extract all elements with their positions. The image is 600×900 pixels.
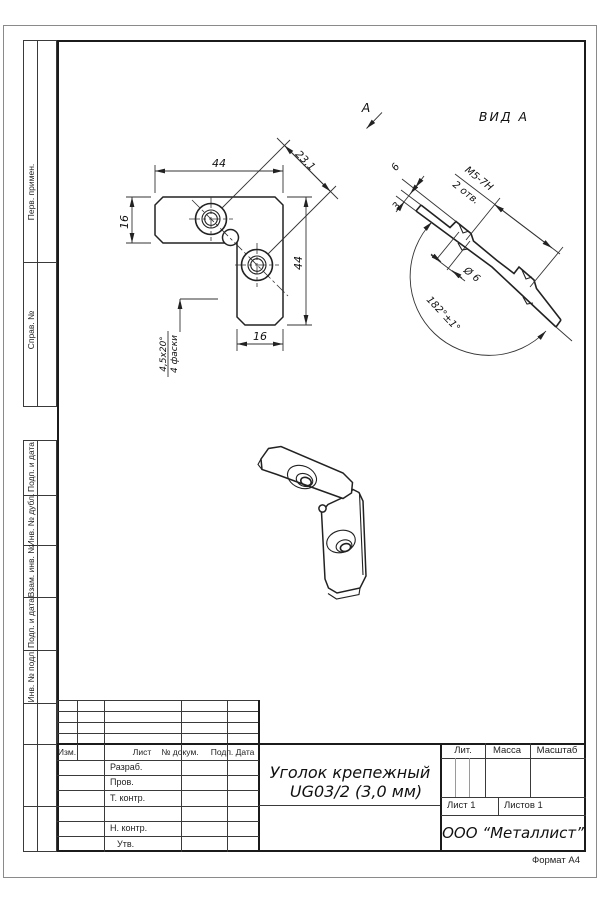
chamfer-count-label: 4 фаски (170, 335, 180, 373)
view-arrow-label: A (361, 100, 371, 115)
chamfer-note: 4,5x20° 4 фаски (159, 299, 218, 377)
view-direction-arrow: A (361, 100, 382, 129)
drawing-sheet: Перв. примен. Справ. № Подп. и дата Инв.… (0, 0, 600, 900)
dim-left-label: 16 (118, 215, 131, 229)
corner-relief-notch (223, 230, 239, 246)
dim-bottom-label: 16 (253, 330, 267, 343)
view-a: ВИД А A 6 3 (361, 100, 572, 355)
dim-left-16: 16 (118, 197, 151, 243)
iso-plate-2 (322, 490, 367, 594)
iso-relief-notch (319, 505, 326, 512)
dim-right-44: 44 (287, 197, 312, 325)
dim-6-label: 6 (390, 162, 403, 174)
dim-right-label: 44 (292, 256, 305, 270)
iso-plate-1 (261, 447, 353, 499)
dia-label: Ø 6 (461, 264, 483, 285)
main-view: 44 16 44 16 (118, 138, 338, 377)
dim-bottom-16: 16 (237, 329, 283, 351)
drawing-views: 44 16 44 16 (0, 0, 600, 900)
dim-diagonal-label: 23,1 (293, 148, 318, 173)
isometric-view (258, 447, 366, 600)
view-a-title: ВИД А (479, 109, 529, 124)
dim-3-label: 3 (391, 201, 404, 213)
dim-6-and-3: 6 3 (390, 162, 456, 222)
angle-dim: 182°±1° (410, 222, 572, 355)
dim-top-44: 44 (155, 157, 283, 193)
dim-top-label: 44 (212, 157, 226, 170)
strip-top-face (421, 205, 561, 320)
chamfer-size-label: 4,5x20° (159, 336, 169, 372)
dia-6-dim: Ø 6 (431, 232, 482, 285)
